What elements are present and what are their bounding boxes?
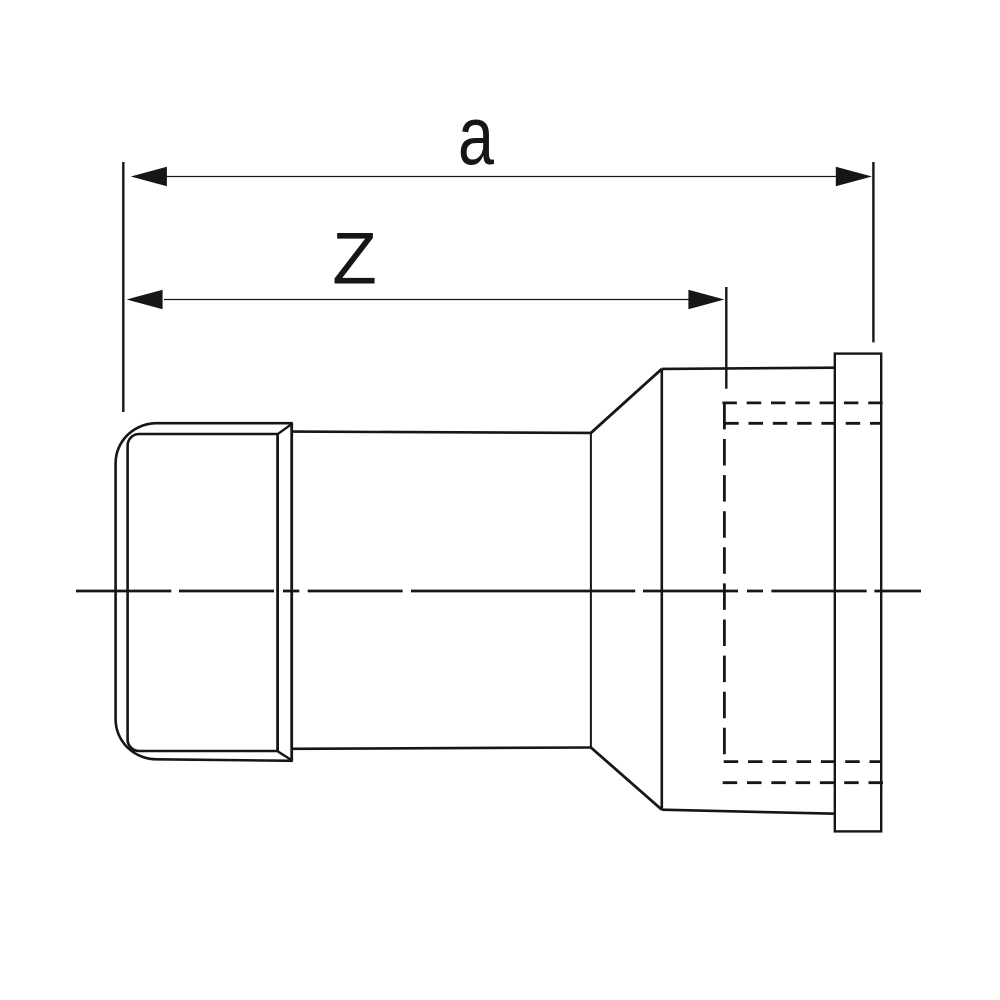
svg-text:a: a bbox=[458, 89, 495, 182]
svg-text:Z: Z bbox=[332, 219, 377, 300]
